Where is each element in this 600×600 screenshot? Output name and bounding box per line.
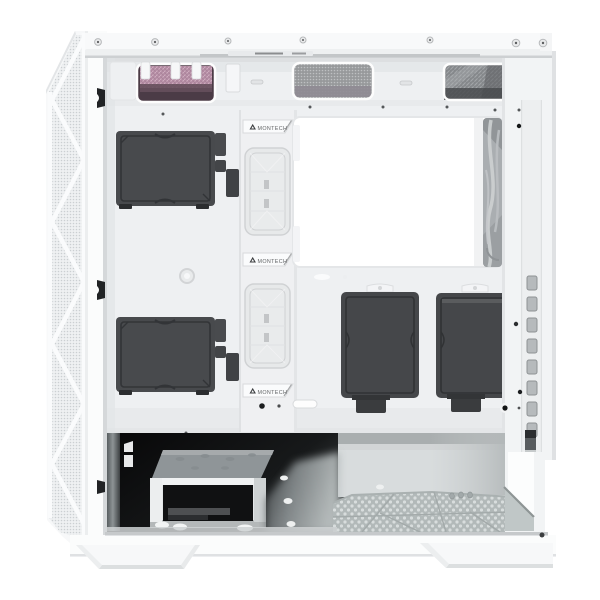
svg-text:MONTECH: MONTECH	[258, 126, 288, 132]
svg-text:MONTECH: MONTECH	[258, 390, 288, 396]
svg-text:MONTECH: MONTECH	[258, 259, 288, 265]
